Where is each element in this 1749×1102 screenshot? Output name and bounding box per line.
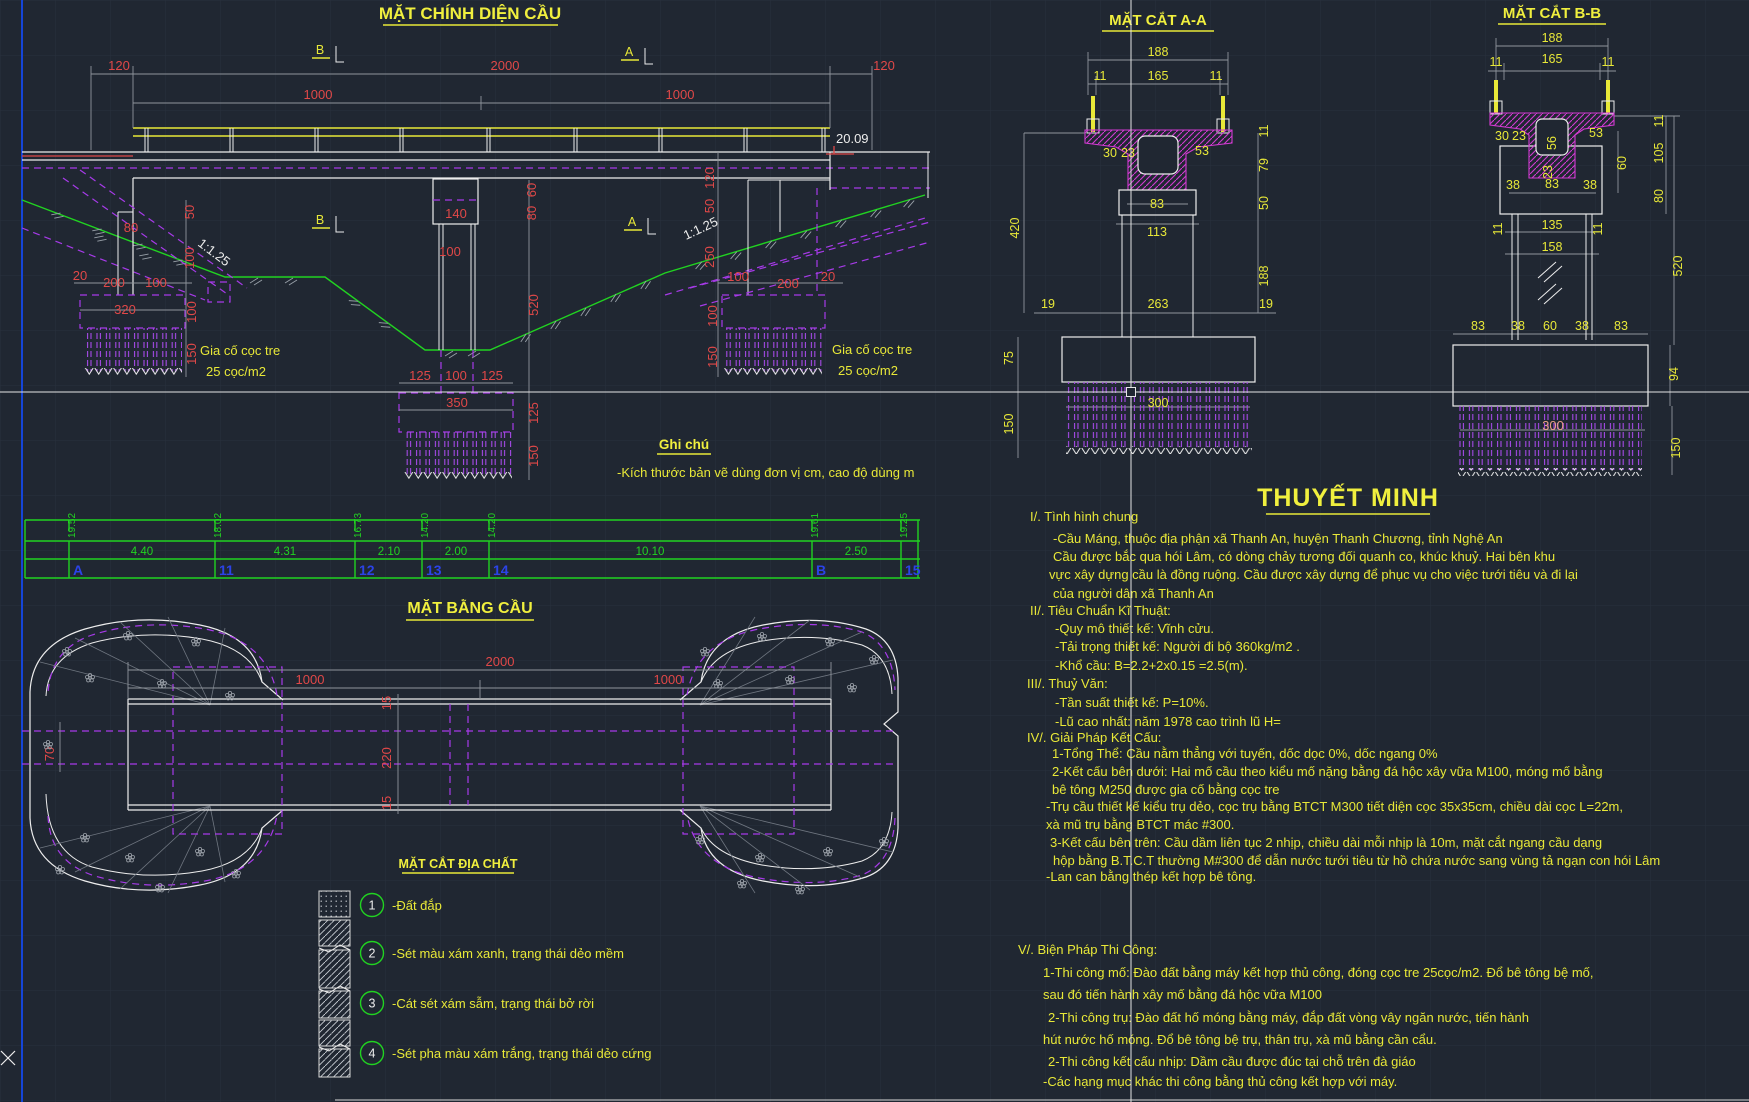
dim: 105 — [1652, 143, 1666, 164]
elevation: 16.73 — [353, 513, 364, 538]
note-line: -Lũ cao nhất: năm 1978 cao trình lũ H= — [1055, 714, 1281, 729]
dim: 80 — [1652, 189, 1666, 203]
dim: 11 — [1210, 69, 1223, 83]
dim: 150 — [1002, 414, 1016, 435]
dim: 100 — [705, 305, 720, 327]
note-line: hút nước hố móng. Đổ bê tông bệ trụ, thâ… — [1043, 1032, 1437, 1047]
dim: 125 — [481, 368, 503, 383]
dim: 83 — [1150, 197, 1164, 211]
dim: 150 — [526, 445, 541, 467]
dim: 50 — [702, 199, 717, 213]
dim: 38 — [1583, 178, 1597, 192]
dim: 30 — [1103, 146, 1117, 160]
dim: 11 — [1490, 55, 1503, 69]
dim: 150 — [1669, 438, 1683, 459]
marker-label: A — [625, 45, 634, 59]
dim: 15 — [379, 796, 394, 810]
dim: 188 — [1257, 266, 1271, 287]
elevation: 19.61 — [810, 513, 821, 538]
note-title: Ghi chú — [659, 437, 709, 452]
legend-label: -Sét màu xám xanh, trạng thái dẻo mềm — [392, 946, 624, 961]
dim: 100 — [182, 247, 197, 269]
distance: 10.10 — [636, 546, 665, 558]
station: A — [73, 562, 83, 578]
note-line: -Cầu Máng, thuộc địa phận xã Thanh An, h… — [1053, 531, 1503, 546]
pile-note: Gia cố cọc tre — [200, 343, 280, 358]
note-line: V/. Biện Pháp Thi Công: — [1018, 942, 1157, 957]
legend-label: -Sét pha màu xám trắng, trạng thái dẻo c… — [392, 1046, 651, 1061]
dim: 300 — [1148, 396, 1169, 410]
legend-label: -Cát sét xám sẫm, trạng thái bở rời — [392, 996, 594, 1011]
dim: 20 — [73, 268, 87, 283]
note-line: -Trụ cầu thiết kế kiểu trụ dẻo, cọc trụ … — [1046, 799, 1623, 814]
note-line: của người dân xã Thanh An — [1053, 586, 1214, 601]
dim: 19 — [1259, 297, 1273, 311]
note-line: bê tông M250 được gia cố bằng cọc tre — [1052, 782, 1280, 797]
note-line: xà mũ trụ bằng BTCT mác #300. — [1046, 817, 1234, 832]
dim: 56 — [1545, 136, 1559, 150]
dim: 150 — [184, 343, 199, 365]
dim: 100 — [727, 269, 749, 284]
note-line: -Các hạng mục khác thi công bằng thủ côn… — [1043, 1074, 1397, 1089]
station: 15 — [905, 562, 921, 578]
distance: 2.10 — [378, 546, 400, 558]
dim: 11 — [1257, 124, 1271, 137]
view-title: MẶT CẮT A-A — [1109, 11, 1207, 29]
cad-canvas[interactable]: MẶT CHÍNH DIỆN CẦU B A B A — [0, 0, 1749, 1102]
spot-elevation-label: 20.09 — [836, 131, 869, 146]
elevation: 19.25 — [899, 513, 910, 538]
dim: 263 — [1148, 297, 1169, 311]
elevation: 14.20 — [487, 513, 498, 538]
station: 11 — [219, 562, 234, 578]
note-line: -Tần suất thiết kế: P=10%. — [1055, 695, 1209, 710]
note-line: 1-Thi công mố: Đào đất bằng máy kết hợp … — [1043, 965, 1594, 980]
dim: 125 — [526, 402, 541, 424]
dim: 520 — [526, 294, 541, 316]
note-line: 3-Kết cấu bên trên: Cầu dầm liên tục 2 n… — [1050, 835, 1602, 850]
pile-note: Gia cố cọc tre — [832, 342, 912, 357]
note-line: 2-Thi công trụ: Đào đất hố móng bằng máy… — [1048, 1010, 1529, 1025]
legend-title: MẶT CẮT ĐỊA CHẤT — [399, 856, 518, 871]
marker-label: B — [316, 213, 324, 227]
dim: 38 — [1506, 178, 1520, 192]
dim: 2000 — [486, 654, 515, 669]
note-line: I/. Tình hình chung — [1030, 509, 1138, 524]
legend-number: 3 — [369, 997, 376, 1011]
dim: 100 — [184, 301, 199, 323]
dim: 11 — [1491, 222, 1505, 235]
dim: 165 — [1148, 69, 1169, 83]
dim: 53 — [1195, 144, 1209, 158]
marker-label: B — [316, 43, 324, 57]
dim: 188 — [1542, 31, 1563, 45]
dim: 38 — [1575, 319, 1589, 333]
note-line: -Khổ cầu: B=2.2+2x0.15 =2.5(m). — [1055, 658, 1248, 673]
marker-label: A — [628, 215, 637, 229]
dim: 11 — [1591, 222, 1605, 235]
dim: 11 — [1094, 69, 1107, 83]
station: 12 — [359, 562, 375, 578]
dim: 100 — [445, 368, 467, 383]
dim: 113 — [1147, 225, 1167, 239]
note-line: Cầu được bắc qua hói Lâm, có dòng chảy t… — [1053, 549, 1555, 564]
note-line: II/. Tiêu Chuẩn Kĩ Thuật: — [1030, 603, 1171, 618]
dim: 200 — [777, 276, 799, 291]
dim: 220 — [379, 747, 394, 769]
dim: 100 — [439, 244, 461, 259]
note-line: vực xây dựng cầu là đồng ruộng. Cầu được… — [1049, 567, 1578, 582]
dim: 1000 — [666, 87, 695, 102]
view-title: MẶT CẮT B-B — [1503, 4, 1601, 22]
dim: 60 — [1543, 319, 1557, 333]
dim: 50 — [1257, 196, 1271, 210]
dim: 100 — [145, 275, 167, 290]
cad-model-space[interactable]: MẶT CHÍNH DIỆN CẦU B A B A — [0, 0, 1749, 1102]
elevation: 18.02 — [213, 513, 224, 538]
note-line: 2-Thi công kết cấu nhịp: Dầm cầu được đú… — [1048, 1054, 1416, 1069]
legend-number: 2 — [369, 947, 376, 961]
dim: 94 — [1667, 367, 1681, 381]
dim: 79 — [1257, 158, 1271, 172]
dim: 60 — [1615, 156, 1629, 170]
dim: 23 — [1121, 146, 1135, 160]
note-line: III/. Thuỷ Văn: — [1027, 676, 1108, 691]
note-line: -Quy mô thiết kế: Vĩnh cửu. — [1055, 621, 1214, 636]
dim: 120 — [108, 58, 130, 73]
note-line: 1-Tổng Thể: Cầu nằm thẳng với tuyến, dốc… — [1052, 746, 1438, 761]
dim: 19 — [1041, 297, 1055, 311]
dim: 80 — [124, 220, 138, 235]
dim: 120 — [873, 58, 895, 73]
dim: 165 — [1542, 52, 1563, 66]
note-line: 2-Kết cấu bên dưới: Hai mố cầu theo kiểu… — [1052, 764, 1603, 779]
distance: 4.40 — [131, 546, 153, 558]
dim: 23 — [1512, 129, 1526, 143]
pile-note: 25 cọc/m2 — [206, 364, 266, 379]
dim: 150 — [705, 346, 720, 368]
dim: 1000 — [296, 672, 325, 687]
dim: 75 — [1002, 351, 1016, 365]
dim: 30 — [1495, 129, 1509, 143]
dim: 420 — [1008, 218, 1022, 239]
distance: 2.50 — [845, 546, 867, 558]
dim: 158 — [1542, 240, 1563, 254]
station: 13 — [426, 562, 442, 578]
view-title: MẶT CHÍNH DIỆN CẦU — [379, 4, 561, 23]
dim: 200 — [103, 275, 125, 290]
dim: 83 — [1545, 177, 1559, 191]
pickbox — [1127, 388, 1136, 397]
dim: 60 — [524, 183, 539, 197]
dim: 320 — [114, 302, 136, 317]
bb-pile-field — [1458, 406, 1642, 470]
note-line: sau đó tiến hành xây mố bằng đá hộc vữa … — [1043, 987, 1322, 1002]
dim: 125 — [409, 368, 431, 383]
dim: 1000 — [304, 87, 333, 102]
dim: 350 — [446, 395, 468, 410]
aa-girder-void — [1138, 136, 1178, 174]
pile-field — [404, 432, 512, 476]
elevation: 19.52 — [67, 513, 78, 538]
pile-note: 25 cọc/m2 — [838, 363, 898, 378]
dim: 11 — [1602, 55, 1615, 69]
dim: 80 — [524, 206, 539, 220]
dim: 250 — [702, 246, 717, 268]
legend-number: 1 — [369, 899, 376, 913]
dim: 20 — [821, 269, 835, 284]
legend-label: -Đất đắp — [392, 898, 442, 913]
dim: 188 — [1148, 45, 1169, 59]
station: B — [816, 562, 826, 578]
dim: 50 — [182, 205, 197, 219]
note-line: hộp bằng B.T.C.T thường M#300 để dẫn nướ… — [1053, 853, 1660, 868]
dim: 140 — [445, 206, 467, 221]
dim: 520 — [1671, 256, 1685, 277]
dim: 53 — [1589, 126, 1603, 140]
distance: 4.31 — [274, 546, 296, 558]
elevation: 14.20 — [420, 513, 431, 538]
view-title: MẶT BẰNG CẦU — [407, 598, 532, 617]
dim: 120 — [702, 167, 717, 189]
station: 14 — [493, 562, 509, 578]
note-line: -Tải trọng thiết kế: Người đi bộ 360kg/m… — [1055, 639, 1300, 654]
note-line: -Lan can bằng thép kết hợp bê tông. — [1046, 869, 1256, 884]
distance: 2.00 — [445, 546, 467, 558]
dim: 2000 — [491, 58, 520, 73]
dim: 83 — [1471, 319, 1485, 333]
dim: 1000 — [654, 672, 683, 687]
notes-title: THUYẾT MINH — [1257, 483, 1439, 512]
note-line: -Kích thước bản vẽ dùng đơn vị cm, cao đ… — [617, 465, 914, 480]
dim: 135 — [1542, 218, 1563, 232]
dim: 83 — [1614, 319, 1628, 333]
dim: 300 — [1542, 418, 1564, 433]
pile-field — [724, 328, 822, 372]
note-line: IV/. Giải Pháp Kết Cấu: — [1027, 730, 1161, 745]
dim: 15 — [379, 696, 394, 710]
pile-field — [84, 328, 182, 372]
legend-number: 4 — [369, 1047, 376, 1061]
dim: 38 — [1511, 319, 1525, 333]
dim: 11 — [1652, 114, 1666, 127]
